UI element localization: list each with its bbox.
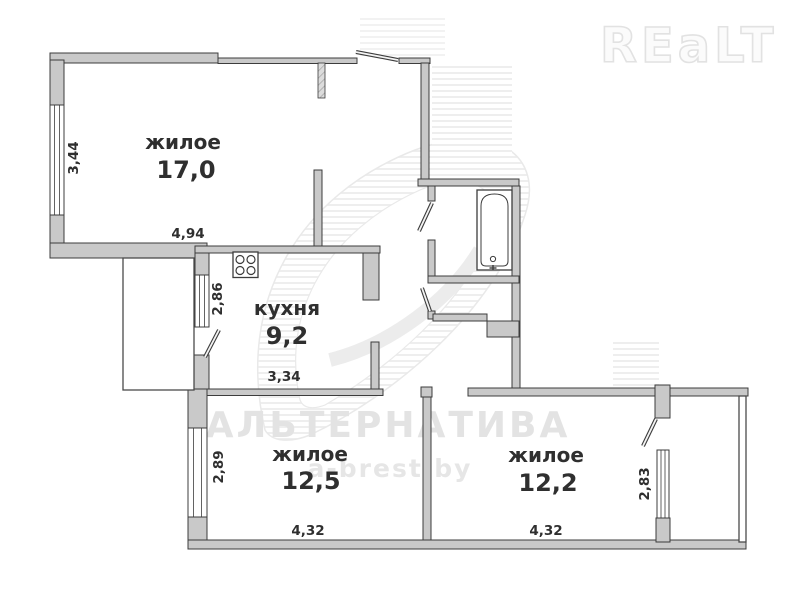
floor-plan-page: REaLT АЛЬТЕРНАТИВА а-brest.by <box>0 0 800 599</box>
wall-kitchen-left-lower <box>194 355 209 393</box>
dim-living1-height: 3,44 <box>66 141 82 174</box>
wall-room-divider <box>423 397 431 540</box>
wall-kitchen-top <box>195 246 380 253</box>
wall-bath-top <box>418 179 519 186</box>
vent-stub <box>318 63 325 98</box>
window-living2 <box>188 428 207 517</box>
wall-living1-bottom <box>50 243 207 258</box>
wall-top-thick <box>50 53 218 63</box>
wall-kitchen-right-lower <box>371 342 379 392</box>
balcony-parapet <box>739 396 746 542</box>
living2-area: 12,5 <box>281 467 340 495</box>
floor-plan: REaLT АЛЬТЕРНАТИВА а-brest.by <box>0 0 800 599</box>
wall-vent-block <box>487 321 519 337</box>
wall-living1-right <box>314 170 322 246</box>
dim-living2-height: 2,89 <box>211 450 227 483</box>
living3-name: жилое <box>508 443 584 467</box>
wall-bath-right <box>512 186 520 388</box>
dim-living1-width: 4,94 <box>171 226 204 242</box>
living3-area: 12,2 <box>518 469 577 497</box>
kitchen-name: кухня <box>254 296 320 320</box>
bathtub-icon <box>477 190 512 270</box>
wall-bath-left-stub1 <box>428 186 435 201</box>
dim-kitchen-width: 3,34 <box>267 369 300 385</box>
balcony-door <box>643 419 656 446</box>
wall-kitchen-left-stub <box>195 253 209 275</box>
wall-bottom-section-top-left <box>188 389 383 396</box>
wall-divider-head <box>421 387 432 397</box>
living1-area: 17,0 <box>156 156 215 184</box>
wall-bottomleft-upper <box>188 389 207 428</box>
wall-hall-right <box>421 63 429 180</box>
dim-living3-height: 2,83 <box>637 467 653 500</box>
wall-top-thin <box>218 58 357 64</box>
loggia-outline <box>123 258 194 390</box>
window-kitchen <box>195 275 209 327</box>
wall-bottom-section-top-right <box>468 388 748 396</box>
dim-living3-width: 4,32 <box>529 523 562 539</box>
wall-kitchen-right-upper <box>363 253 379 300</box>
stove-icon <box>233 252 258 278</box>
window-balcony <box>657 450 669 518</box>
kitchen-loggia-door <box>205 330 219 357</box>
wall-balcony-block-top <box>655 385 670 418</box>
dim-living2-width: 4,32 <box>291 523 324 539</box>
kitchen-area: 9,2 <box>266 322 309 350</box>
living2-name: жилое <box>272 442 348 466</box>
wall-bath-toilet-divider <box>428 276 519 283</box>
agency-watermark: АЛЬТЕРНАТИВА <box>206 405 571 446</box>
wall-balcony-block-bottom <box>656 518 670 542</box>
window-living1 <box>50 105 64 215</box>
realt-logo: REaLT <box>600 18 778 74</box>
wall-left-upper <box>50 60 64 105</box>
wall-toilet-bottom <box>433 314 487 321</box>
living1-name: жилое <box>145 130 221 154</box>
dim-kitchen-height: 2,86 <box>210 282 226 315</box>
